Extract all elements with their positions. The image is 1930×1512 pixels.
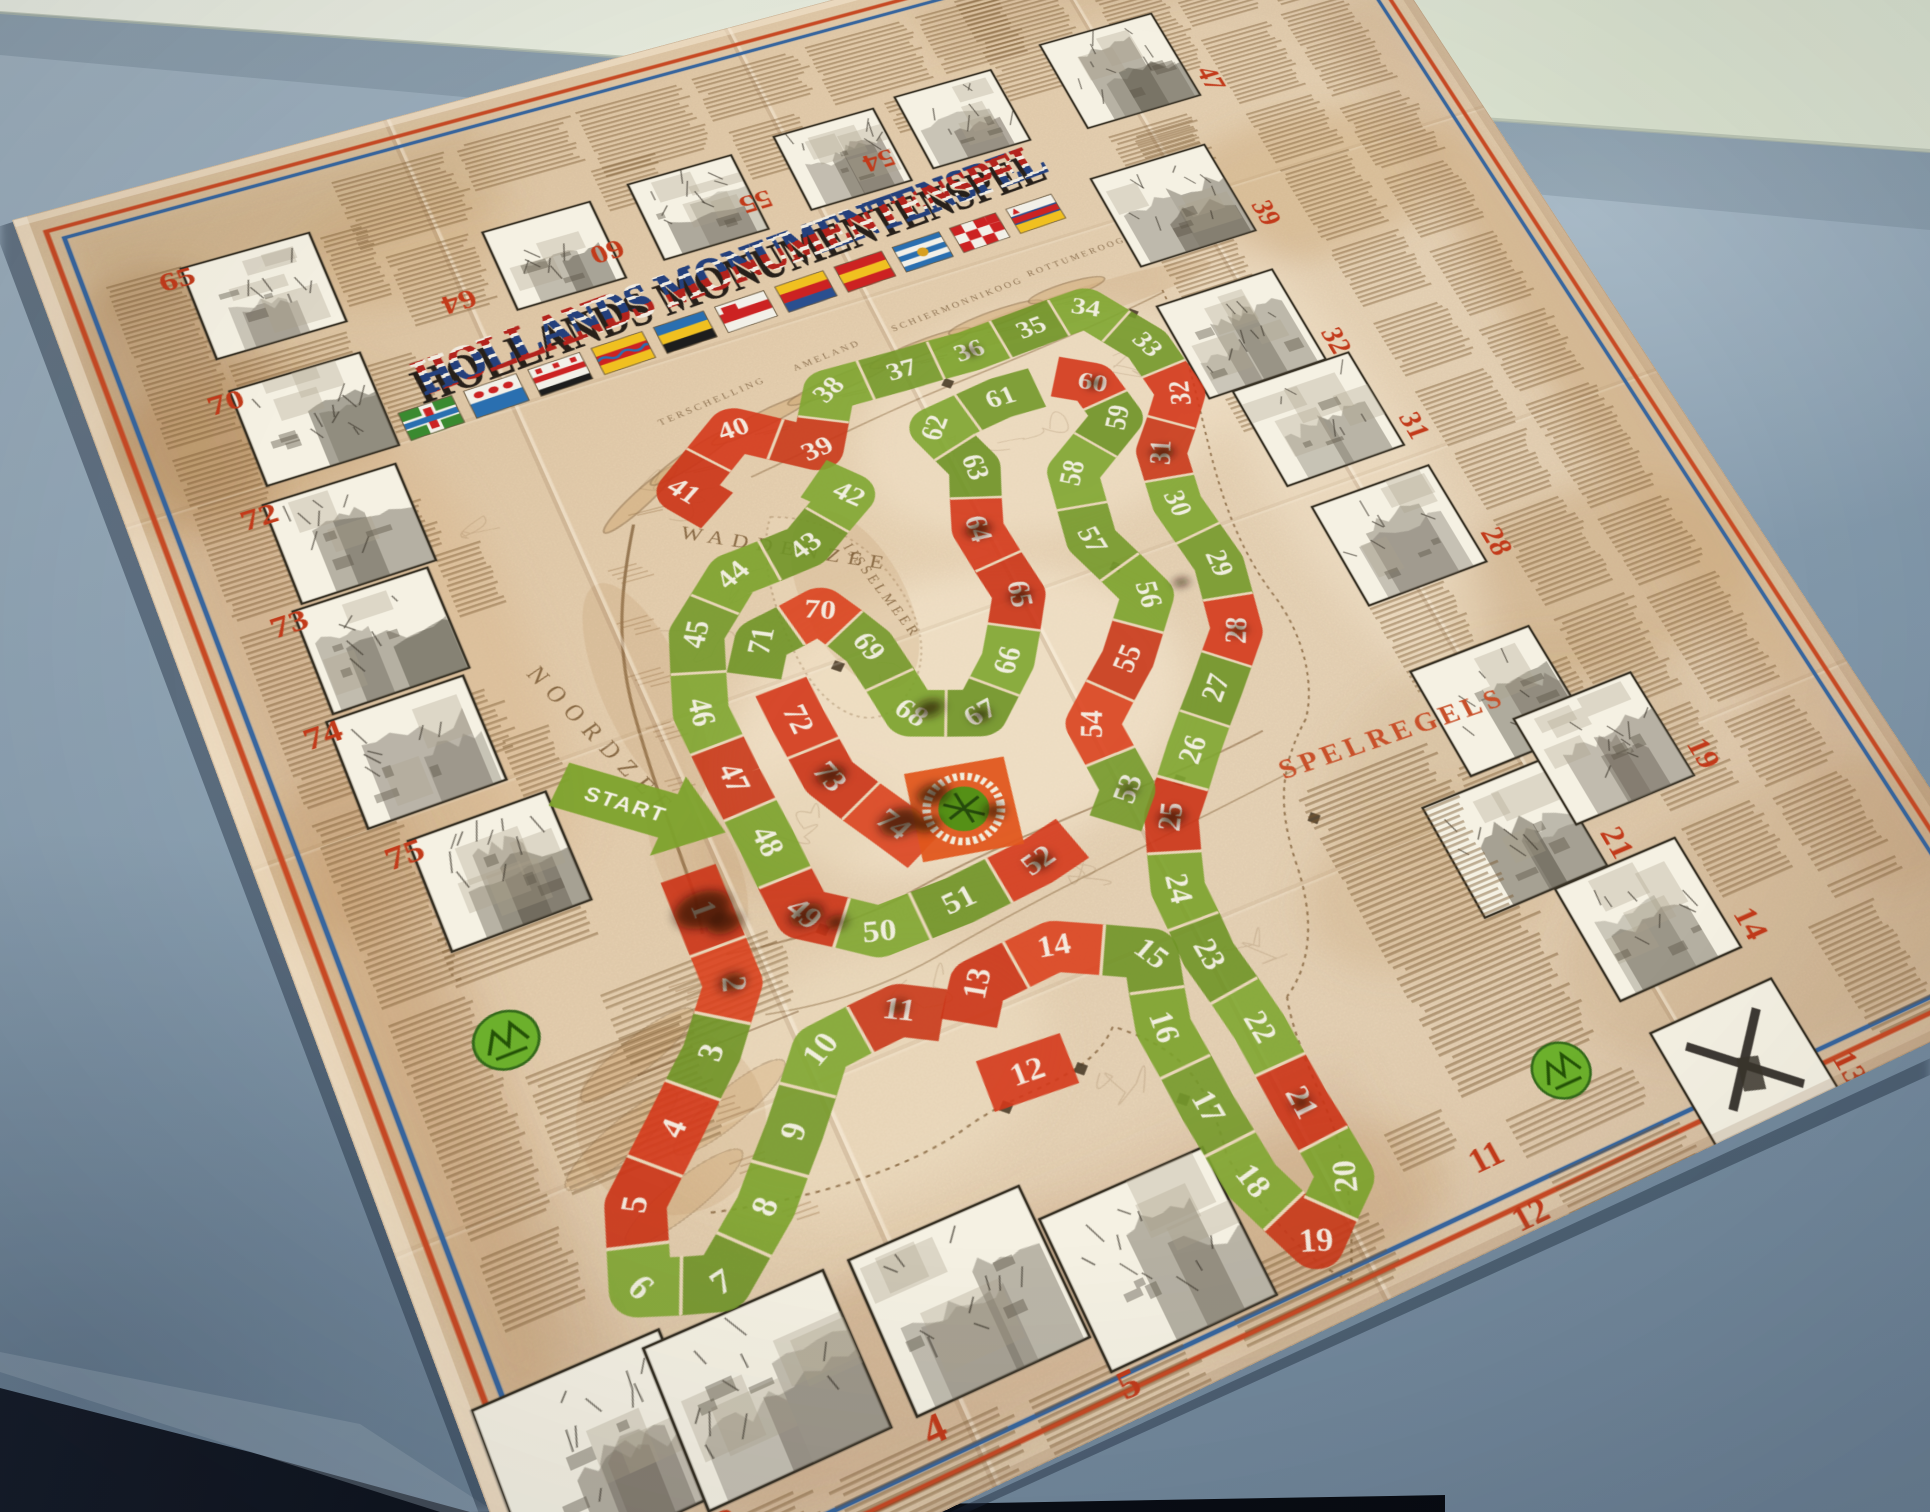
svg-text:34: 34 [1069, 293, 1102, 322]
svg-text:13: 13 [956, 965, 999, 1002]
svg-text:50: 50 [861, 914, 898, 950]
svg-text:54: 54 [1075, 710, 1110, 739]
svg-text:32: 32 [1163, 380, 1198, 405]
svg-text:71: 71 [741, 625, 782, 657]
svg-text:19: 19 [1298, 1222, 1335, 1260]
svg-text:45: 45 [676, 618, 718, 650]
svg-text:70: 70 [802, 595, 837, 626]
svg-text:14: 14 [1034, 927, 1073, 965]
svg-text:20: 20 [1326, 1159, 1366, 1194]
